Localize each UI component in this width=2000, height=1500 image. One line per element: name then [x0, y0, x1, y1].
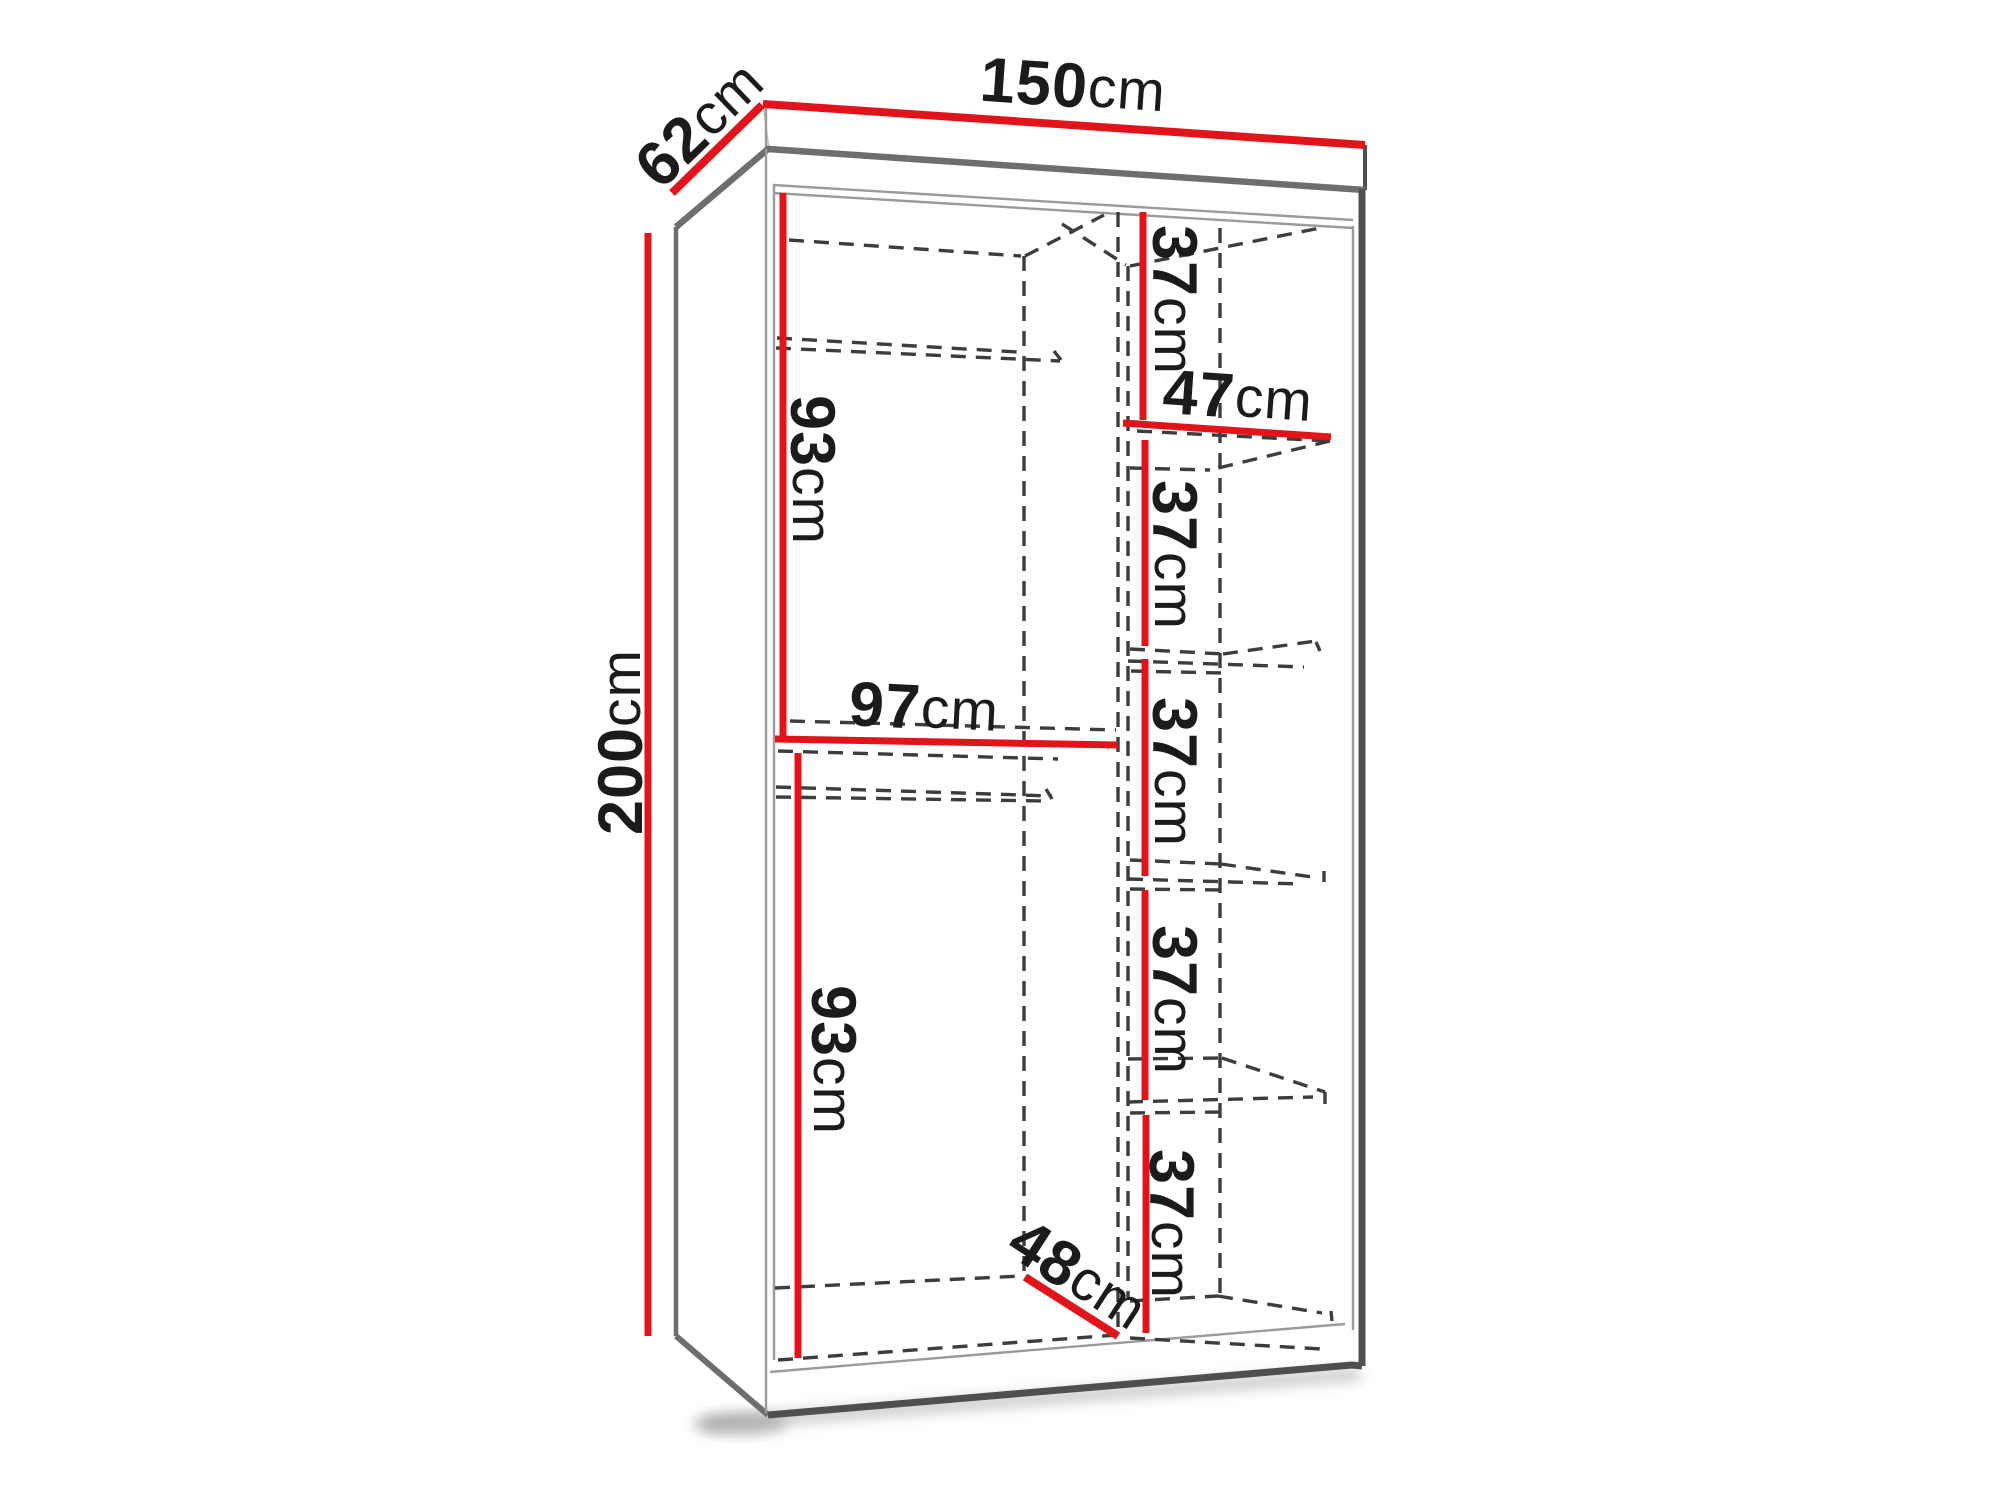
- floor-front-edge-right: [1130, 1338, 1322, 1349]
- shelf4-side-diagonal: [1222, 1058, 1325, 1092]
- depth-62-label: 62cm: [622, 47, 779, 202]
- partition-top-diagonal: [1025, 215, 1104, 256]
- height-200-label: 200cm: [586, 649, 656, 835]
- wardrobe-dimension-diagram: 150cm 62cm 200cm 93cm 97cm 93cm 47cm 48c…: [0, 0, 2000, 1500]
- depth-48-label: 48cm: [996, 1205, 1160, 1345]
- wardrobe-carcass: [676, 104, 1365, 1415]
- dimension-labels: 150cm 62cm 200cm 93cm 97cm 93cm 47cm 48c…: [586, 45, 1315, 1346]
- gap2-37-label: 37cm: [1139, 480, 1209, 630]
- shelf1-bottom-diagonal: [1210, 441, 1330, 470]
- ceiling-back-edge-left: [789, 240, 1021, 256]
- ceiling-front-edge: [773, 185, 1353, 220]
- shelf4-bottom-edge: [1130, 1112, 1223, 1113]
- shelf3-side-diagonal: [1221, 864, 1312, 877]
- lower-rail-end: [1046, 789, 1052, 799]
- lower-93-label: 93cm: [798, 985, 868, 1135]
- shelf4-front-edge: [1128, 1097, 1313, 1102]
- left-wall-bottom-edge: [676, 1336, 768, 1415]
- gap1-37-label: 37cm: [1139, 225, 1209, 375]
- gap5-37-label: 37cm: [1136, 1149, 1206, 1299]
- bottom-shadow: [705, 1374, 1360, 1424]
- shelf2-side-diagonal: [1223, 641, 1316, 654]
- lower-rail-front-edge: [776, 797, 1046, 801]
- shelf2-back-edge: [1130, 649, 1223, 654]
- gap4-37-label: 37cm: [1139, 925, 1209, 1075]
- dimension-lines: [648, 104, 1365, 1358]
- plinth-top-edge: [770, 1324, 1345, 1372]
- shelf2-end: [1316, 642, 1320, 651]
- floor-side-diagonal: [1218, 1296, 1322, 1313]
- width-97-label: 97cm: [847, 669, 1001, 747]
- gap3-37-label: 37cm: [1139, 697, 1209, 847]
- floor-back-edge-left: [775, 1276, 1022, 1288]
- shelf2-front-edge: [1128, 661, 1304, 667]
- upper-rail-front-edge: [776, 348, 1060, 361]
- upper-rail-end: [1054, 351, 1061, 360]
- floor-end: [1331, 1311, 1332, 1321]
- bottom-front-edge: [768, 1365, 1362, 1415]
- mid-shelf-bottom-edge: [778, 751, 1058, 759]
- lower-rail-back-edge: [776, 787, 1052, 796]
- shelf3-front-edge: [1128, 879, 1302, 884]
- upper-93-label: 93cm: [777, 395, 847, 545]
- shelf3-bottom-edge: [1130, 889, 1223, 890]
- diagram-canvas: 150cm 62cm 200cm 93cm 97cm 93cm 47cm 48c…: [0, 0, 2000, 1500]
- width-150-label: 150cm: [978, 45, 1169, 128]
